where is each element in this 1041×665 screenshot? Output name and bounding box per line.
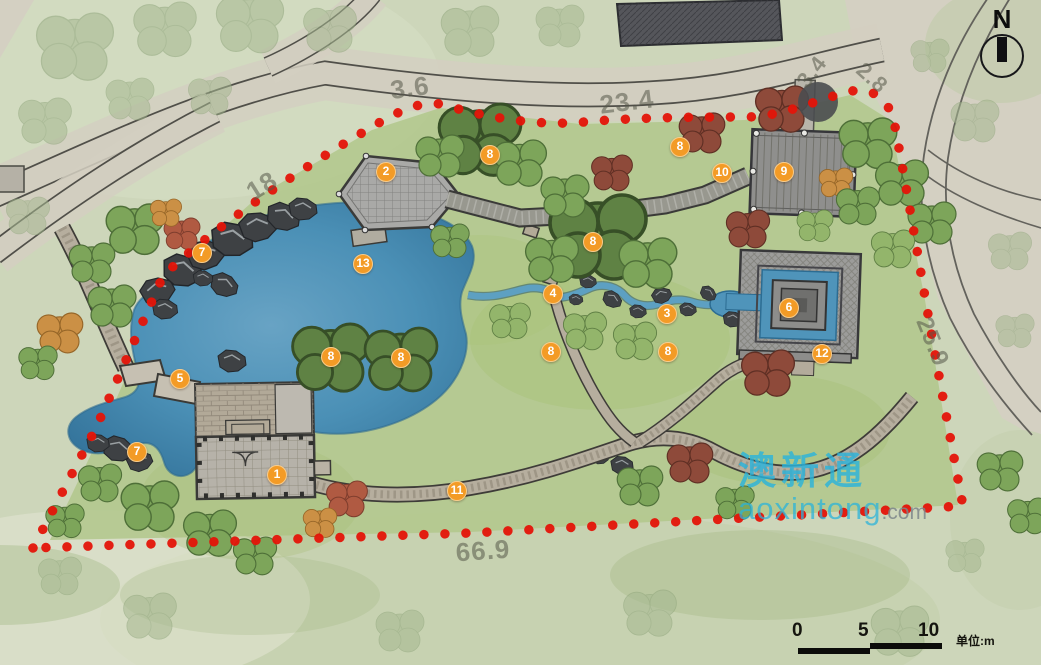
dimension-label: 3.6 <box>388 70 431 106</box>
scale-bar-segment-2 <box>870 643 942 649</box>
site-plan-canvas: 123456778888888910111213 3.623.4183.42.8… <box>0 0 1041 665</box>
scale-unit-label: 单位:m <box>956 632 995 649</box>
north-circle-icon <box>980 34 1024 78</box>
scale-bar: 0 5 10 单位:m <box>780 620 1030 660</box>
dimension-label: 23.4 <box>598 83 656 120</box>
north-arrow: N <box>978 4 1026 78</box>
dimension-label: 18 <box>241 165 284 208</box>
north-needle-icon <box>997 37 1007 62</box>
scale-tick-5: 5 <box>858 620 869 642</box>
dimension-label: 25.9 <box>910 313 955 371</box>
north-label: N <box>978 4 1026 34</box>
dimension-label: 66.9 <box>455 534 512 569</box>
scale-bar-segment-1 <box>798 648 870 654</box>
dimension-label: 3.4 <box>791 51 832 93</box>
dimension-label: 2.8 <box>851 57 893 99</box>
dimension-labels-layer: 3.623.4183.42.825.966.9 <box>0 0 1041 665</box>
scale-tick-10: 10 <box>918 620 939 642</box>
scale-tick-0: 0 <box>792 620 803 642</box>
